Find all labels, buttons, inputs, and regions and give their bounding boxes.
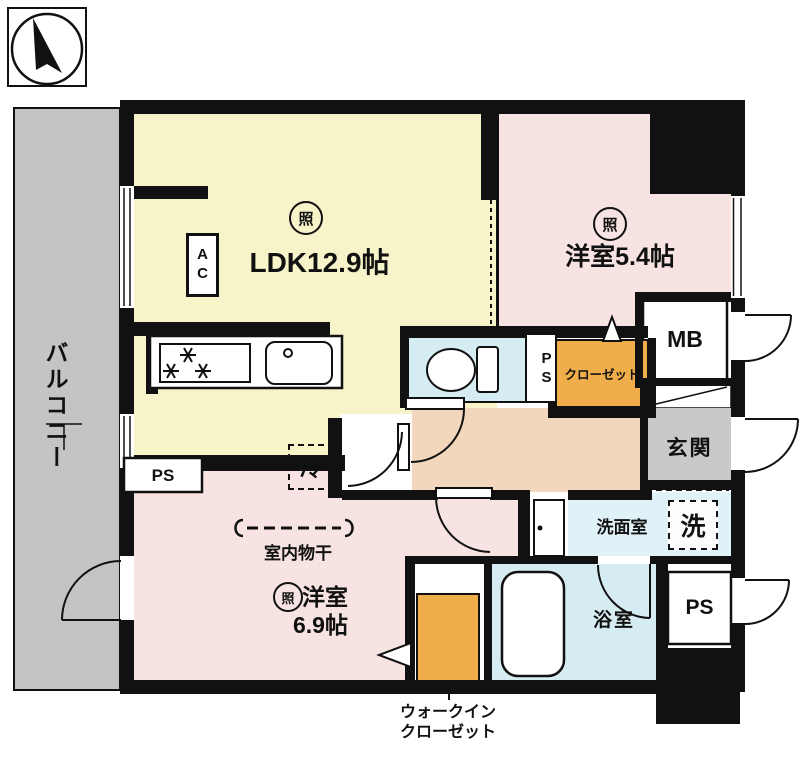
door-arc — [745, 580, 789, 624]
meter-box-label: MB — [643, 326, 727, 353]
bathroom-label: 浴室 — [578, 605, 650, 632]
walk-in-closet-label-line2: クローゼット — [378, 718, 518, 742]
laundry-label: 室内物干 — [238, 539, 358, 564]
western-6-9-size: 6.9帖 — [293, 606, 348, 640]
pipe-space-center-label: PS — [527, 338, 555, 400]
door-arc — [745, 419, 798, 472]
door-arc — [745, 315, 791, 361]
sink — [266, 342, 332, 384]
door-leaf — [406, 398, 464, 409]
toilet — [427, 347, 498, 392]
door-leaf — [436, 488, 492, 498]
pipe-space-left-label: PS — [124, 466, 202, 486]
north-arrow-icon — [8, 8, 86, 86]
fridge-box: 冷 — [288, 444, 334, 490]
room-western-6-9-ext — [408, 498, 518, 556]
balcony-label: バルコニー — [44, 326, 72, 486]
closet-label: クローゼット — [557, 364, 647, 383]
floorplan-canvas — [0, 0, 800, 774]
door-handle-icon — [538, 526, 543, 531]
kitchen-counter — [150, 336, 342, 388]
walk-in-closet — [417, 594, 479, 682]
faucet-icon — [284, 349, 292, 357]
room-western-6-9 — [134, 470, 408, 680]
entrance-label: 玄関 — [648, 432, 731, 462]
corridor — [412, 408, 648, 492]
pipe-space-right-label: PS — [668, 596, 731, 620]
ldk-light-symbol: 照 — [289, 201, 323, 235]
western-5-4-light-symbol: 照 — [593, 207, 627, 241]
washer-box: 洗 — [668, 500, 718, 550]
bathtub — [502, 572, 564, 676]
western-5-4-label: 洋室5.4帖 — [525, 237, 715, 273]
ldk-label: LDK12.9帖 — [212, 241, 427, 281]
washroom-label: 洗面室 — [572, 513, 672, 538]
floorplan: バルコニー AC 照 LDK12.9帖 照 洋室5.4帖 クローゼット MB 玄… — [0, 0, 800, 774]
